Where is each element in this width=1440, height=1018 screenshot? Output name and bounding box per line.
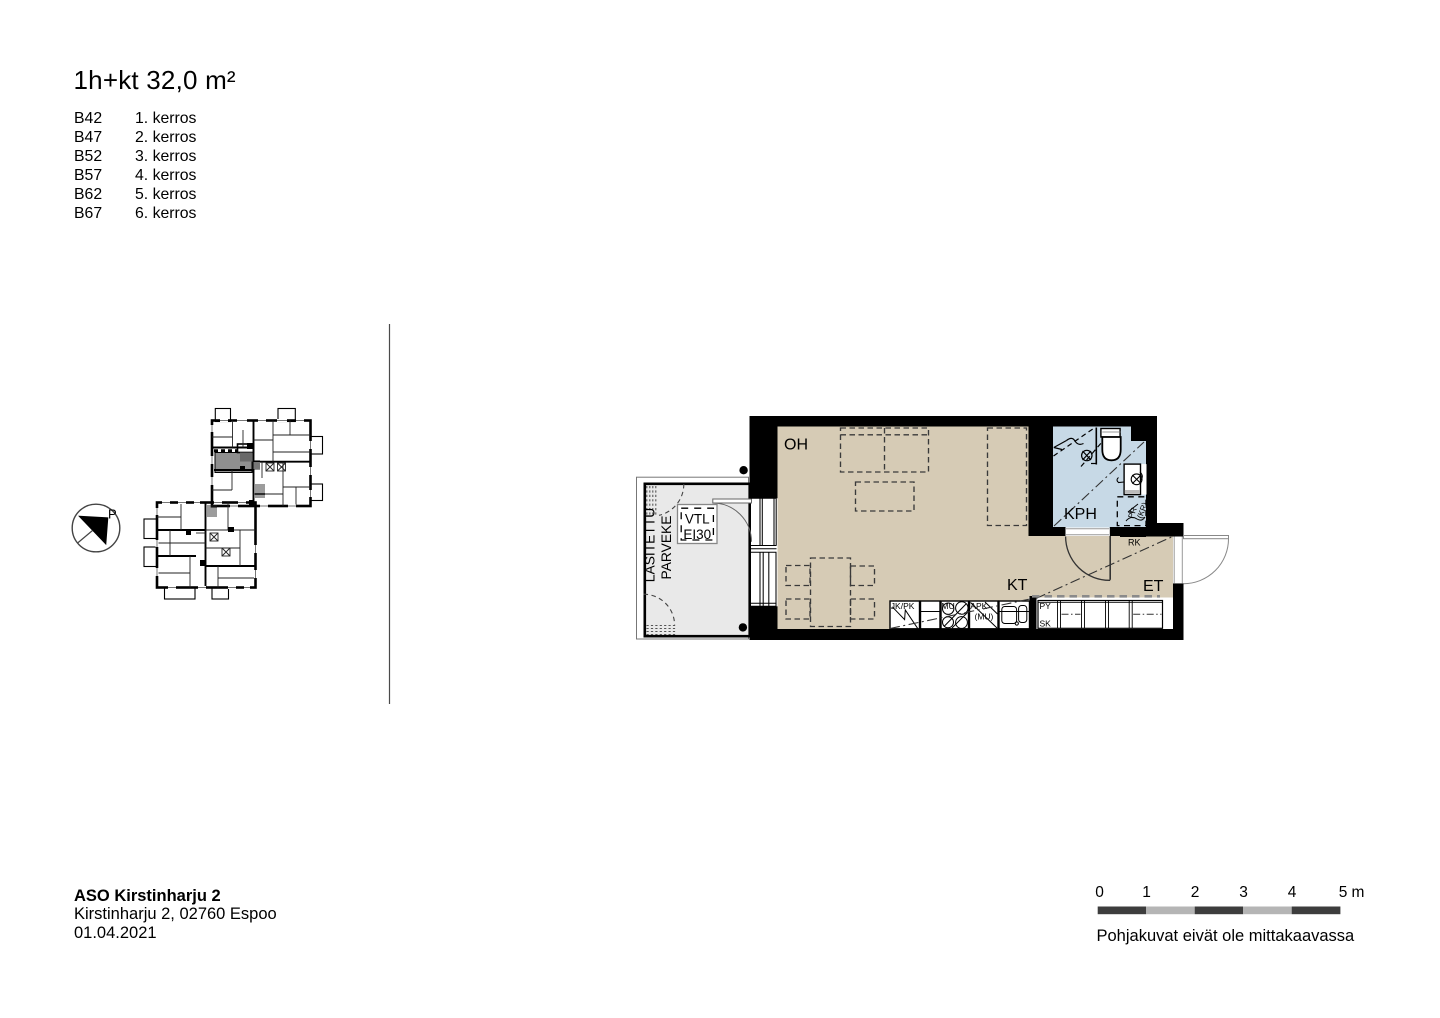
svg-text:EI30: EI30 xyxy=(683,527,711,542)
svg-text:(MU): (MU) xyxy=(975,612,994,622)
svg-text:SK: SK xyxy=(1040,619,1052,629)
svg-text:5: 5 xyxy=(1339,884,1348,901)
svg-text:OH: OH xyxy=(784,437,808,454)
svg-text:2: 2 xyxy=(1191,884,1200,901)
svg-text:RK: RK xyxy=(1128,538,1141,548)
svg-text:PARVEKE: PARVEKE xyxy=(659,516,674,580)
svg-text:LASITETTU: LASITETTU xyxy=(643,508,658,582)
svg-text:KPH: KPH xyxy=(1064,506,1097,523)
svg-text:ET: ET xyxy=(1143,578,1164,595)
svg-text:4: 4 xyxy=(1288,884,1297,901)
svg-text:3: 3 xyxy=(1239,884,1248,901)
svg-text:Pohjakuvat eivät ole mittakaav: Pohjakuvat eivät ole mittakaavassa xyxy=(1097,927,1356,945)
svg-text:0: 0 xyxy=(1095,884,1104,901)
svg-text:VTL: VTL xyxy=(685,512,710,527)
svg-text:m: m xyxy=(1352,884,1365,901)
svg-text:KT: KT xyxy=(1007,577,1028,594)
svg-text:JK/PK: JK/PK xyxy=(891,601,915,611)
svg-text:MU: MU xyxy=(942,601,955,611)
svg-text:1: 1 xyxy=(1142,884,1151,901)
svg-text:P: P xyxy=(108,507,117,522)
svg-text:PY: PY xyxy=(1040,601,1052,611)
